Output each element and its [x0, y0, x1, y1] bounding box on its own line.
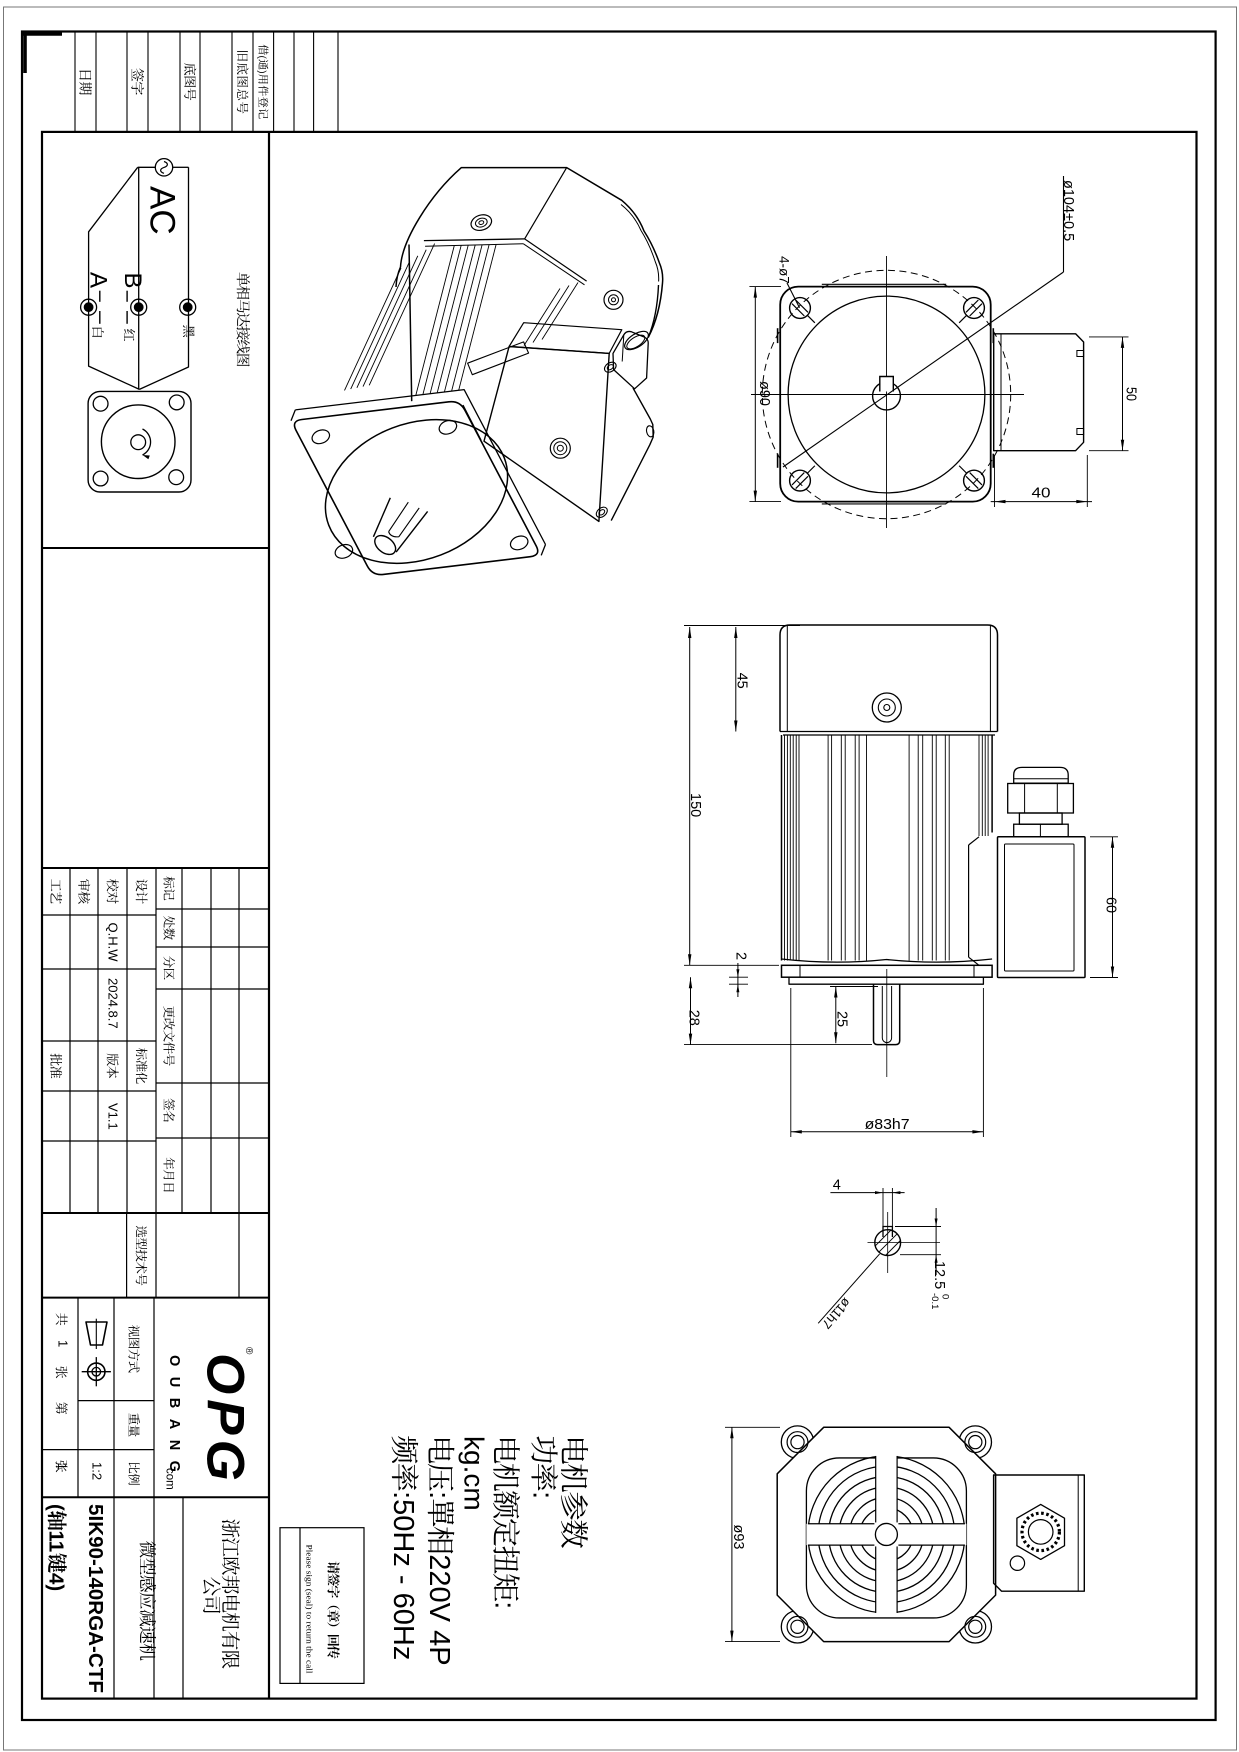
svg-text:Please sign (seal) to return t: Please sign (seal) to return the call — [305, 1545, 315, 1675]
svg-text::50Hz - 60Hz: :50Hz - 60Hz — [387, 1491, 419, 1660]
svg-text:25: 25 — [833, 1011, 849, 1027]
svg-text:28: 28 — [685, 1010, 701, 1026]
svg-text:B: B — [119, 273, 146, 289]
svg-text:12.5: 12.5 — [931, 1261, 947, 1289]
svg-text:AC: AC — [142, 186, 181, 235]
svg-text:1: 1 — [56, 1340, 71, 1347]
svg-text:1: 1 — [55, 1463, 69, 1470]
svg-text:60: 60 — [1103, 897, 1119, 913]
svg-text:4: 4 — [833, 1177, 841, 1193]
svg-text:40: 40 — [1032, 486, 1051, 502]
svg-text:45: 45 — [734, 673, 750, 689]
svg-text::: : — [527, 1491, 559, 1499]
svg-text:V1.1: V1.1 — [105, 1103, 120, 1130]
svg-text:1:2: 1:2 — [89, 1462, 104, 1480]
svg-text:ø83h7: ø83h7 — [865, 1117, 910, 1133]
svg-text:50: 50 — [1122, 387, 1138, 401]
svg-text:5IK90-140RGA-CTF: 5IK90-140RGA-CTF — [84, 1504, 106, 1693]
svg-text:Q.H.W: Q.H.W — [105, 923, 120, 963]
svg-text:2: 2 — [733, 952, 749, 960]
svg-text:ø90: ø90 — [756, 381, 772, 406]
svg-text:0: 0 — [939, 1294, 950, 1299]
svg-text:2024.8.7: 2024.8.7 — [105, 978, 120, 1029]
svg-text:kg.cm: kg.cm — [459, 1436, 490, 1511]
svg-text:-0.1: -0.1 — [929, 1293, 940, 1309]
svg-text:A: A — [85, 272, 112, 288]
svg-text:OUBANG: OUBANG — [166, 1355, 182, 1482]
svg-text::: : — [423, 1491, 455, 1499]
svg-text:): ) — [256, 70, 267, 73]
svg-text:ø93: ø93 — [730, 1525, 746, 1550]
svg-text:220V 4P: 220V 4P — [423, 1554, 455, 1665]
svg-text:com: com — [164, 1468, 176, 1490]
svg-text:4): 4) — [45, 1573, 68, 1591]
svg-text:4-ø7: 4-ø7 — [777, 256, 792, 284]
svg-text:ø104±0.5: ø104±0.5 — [1060, 180, 1076, 241]
svg-text:®: ® — [243, 1347, 254, 1355]
svg-text:(: ( — [45, 1504, 68, 1511]
svg-text:11: 11 — [45, 1531, 68, 1553]
svg-text:OPG: OPG — [196, 1353, 255, 1486]
svg-text:150: 150 — [687, 793, 703, 817]
svg-text::: : — [489, 1601, 521, 1609]
